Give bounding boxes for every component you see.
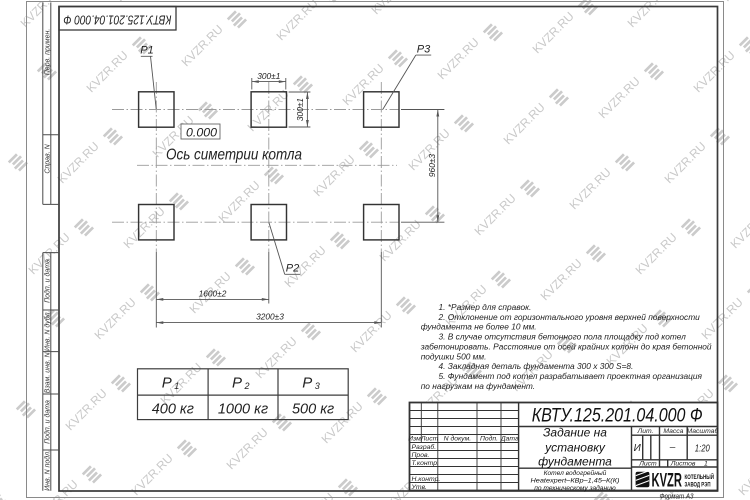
svg-text:подушки 500 мм.: подушки 500 мм. — [421, 351, 487, 361]
svg-text:1000 кг: 1000 кг — [218, 401, 268, 417]
svg-text:по техническому заданию: по техническому заданию — [534, 484, 616, 492]
svg-text:400 кг: 400 кг — [152, 401, 194, 417]
svg-text:Ось симетрии котла: Ось симетрии котла — [166, 147, 302, 164]
svg-text:3200±3: 3200±3 — [256, 312, 284, 322]
svg-text:960±3: 960±3 — [427, 154, 437, 178]
svg-text:КВТУ.125.201.04.000 Ф: КВТУ.125.201.04.000 Ф — [64, 12, 172, 27]
svg-text:Пров.: Пров. — [412, 452, 430, 459]
svg-text:Справ. N: Справ. N — [45, 143, 52, 173]
svg-text:Подп.: Подп. — [480, 435, 498, 443]
svg-text:0.000: 0.000 — [186, 126, 217, 140]
svg-text:по нагрузкам на фундамент.: по нагрузкам на фундамент. — [421, 381, 535, 391]
svg-text:Котел водогрейный: Котел водогрейный — [544, 469, 607, 477]
svg-text:Подп. и дата: Подп. и дата — [44, 259, 52, 303]
svg-text:Масса: Масса — [663, 428, 683, 435]
svg-text:P3: P3 — [417, 44, 431, 56]
svg-text:1600±2: 1600±2 — [199, 288, 227, 298]
svg-text:3. В случае отсутствия бетонн: 3. В случае отсутствия бетонного пола пл… — [439, 332, 687, 342]
svg-text:Heatexpert–КВр–1,45–К(К): Heatexpert–КВр–1,45–К(К) — [531, 478, 620, 485]
svg-text:N докум.: N докум. — [444, 435, 472, 443]
svg-text:забетонировать. Расстояние от: забетонировать. Расстояние от осей крайн… — [420, 341, 712, 351]
svg-text:установку: установку — [544, 441, 606, 455]
svg-text:4. Закладная деталь фундамент: 4. Закладная деталь фундамента 300 x 300… — [439, 361, 634, 371]
svg-text:2. Отклонение от горизонтальн: 2. Отклонение от горизонтального уровня … — [438, 312, 701, 322]
svg-text:P2: P2 — [286, 262, 299, 274]
svg-text:Листов: Листов — [670, 460, 696, 467]
svg-text:300±1: 300±1 — [257, 71, 280, 81]
svg-text:P1: P1 — [140, 45, 153, 57]
svg-text:Задание на: Задание на — [543, 426, 607, 440]
svg-text:Масштаб: Масштаб — [687, 427, 720, 435]
svg-text:фундамента не более 10 мм.: фундамента не более 10 мм. — [421, 322, 537, 332]
svg-text:Инв. N дубл.: Инв. N дубл. — [44, 310, 52, 351]
svg-text:Лист: Лист — [420, 436, 439, 443]
svg-text:И: И — [634, 443, 642, 454]
svg-text:1: 1 — [704, 460, 708, 467]
svg-text:–: – — [669, 442, 676, 453]
svg-text:ЗАВОД РЭП: ЗАВОД РЭП — [685, 482, 711, 488]
svg-text:Утв.: Утв. — [411, 484, 428, 491]
svg-text:Лит.: Лит. — [637, 428, 654, 435]
svg-text:300±1: 300±1 — [295, 98, 305, 121]
svg-text:Разраб.: Разраб. — [412, 443, 437, 451]
svg-text:Взам. инв. N: Взам. инв. N — [45, 351, 52, 393]
svg-text:Т.контр.: Т.контр. — [412, 460, 440, 467]
svg-text:500 кг: 500 кг — [292, 401, 334, 417]
svg-text:Формат А3: Формат А3 — [660, 492, 694, 500]
svg-text:1. *Размер для справок.: 1. *Размер для справок. — [439, 302, 532, 312]
svg-text:КОТЕЛЬНЫЙ: КОТЕЛЬНЫЙ — [685, 473, 715, 481]
svg-text:фундамента: фундамента — [538, 454, 612, 468]
svg-text:Инв. N подл.: Инв. N подл. — [44, 450, 52, 491]
svg-text:Перв. примен.: Перв. примен. — [45, 29, 52, 76]
svg-text:КВТУ.125.201.04.000 Ф: КВТУ.125.201.04.000 Ф — [532, 404, 703, 426]
svg-text:KVZR: KVZR — [652, 471, 683, 492]
svg-text:Лист: Лист — [638, 460, 657, 467]
svg-text:Н.контр.: Н.контр. — [412, 476, 441, 483]
svg-text:1:20: 1:20 — [695, 444, 710, 455]
svg-text:Дата: Дата — [500, 436, 519, 443]
svg-text:5. Фундамент под котел разраб: 5. Фундамент под котел разрабатывает про… — [439, 371, 703, 381]
svg-text:Подп. и дата: Подп. и дата — [44, 400, 52, 444]
